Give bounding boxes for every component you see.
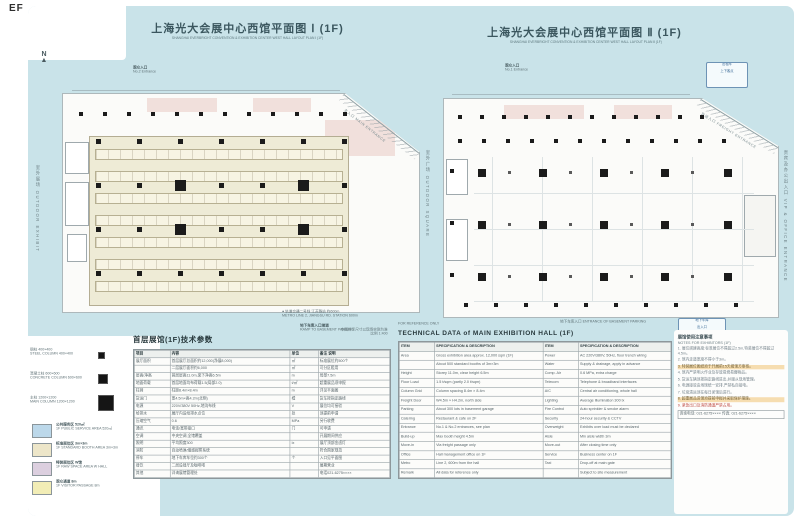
- table-cell: Average illumination 300 lx: [578, 396, 670, 405]
- right-table-title: TECHNICAL DATA of MAIN EXHIBITION HALL (…: [398, 330, 574, 337]
- left-table-note: 本图所示尺寸以现场实测为准比例 1:400: [288, 328, 388, 342]
- table-row: Move-inVia freight passage onlyMove-outA…: [399, 442, 670, 451]
- big-column-marker: [175, 180, 186, 191]
- booth-strip: [95, 237, 343, 248]
- column-marker: [223, 112, 227, 116]
- table-cell: Auto sprinkler & smoke alarm: [578, 405, 670, 414]
- table-cell: No.1 & No.2 entrances, see plan: [435, 423, 544, 432]
- table-cell: 局部7.5m: [318, 373, 390, 380]
- table-cell: 超重展品须申报: [318, 380, 390, 387]
- column-marker: [450, 169, 454, 173]
- table-cell: MPa: [290, 418, 318, 425]
- table-header-cell: 备注 说明: [318, 350, 390, 357]
- table-cell: Business center on 1F: [578, 451, 670, 460]
- table-row: CateringRestaurant & cafe on 2FSecurity2…: [399, 414, 670, 423]
- column-marker: [137, 139, 142, 144]
- table-cell: Restaurant & cafe on 2F: [435, 414, 544, 423]
- table-cell: 首层地面均布荷载1.5(局部2.0): [170, 380, 290, 387]
- table-cell: 符合国家规范: [318, 448, 390, 455]
- lobby-zone: [614, 105, 672, 119]
- note-item: 8. 超重展品进馆须提前申报并采取保护措施。: [678, 397, 785, 402]
- table-cell: Metro: [399, 460, 434, 469]
- booth-strip: [95, 259, 343, 270]
- booth-strip: [95, 149, 343, 160]
- table-cell: [399, 360, 434, 369]
- table-cell: ㎡: [290, 365, 318, 372]
- column-marker: [626, 139, 630, 143]
- table-cell: 照明: [134, 440, 170, 447]
- big-column-marker: [724, 169, 732, 177]
- table-cell: Area: [399, 351, 434, 360]
- table-row: 空调中央空调,全馆覆盖开展期间供应: [134, 433, 389, 440]
- notes-heading-en: NOTES FOR EXHIBITORS (1F): [678, 341, 785, 345]
- column-marker: [656, 115, 660, 119]
- east-core: [744, 195, 776, 257]
- column-marker: [199, 112, 203, 116]
- right-table-note: FOR REFERENCE ONLY: [398, 322, 498, 329]
- table-cell: Fire Control: [543, 405, 578, 414]
- column-symbol: [98, 395, 114, 411]
- table-cell: 首层层高11.0m,梁下净高6.5m: [170, 373, 290, 380]
- note-item: 3. 特装展位图纸须于开展前15天报馆方审核。: [678, 365, 785, 370]
- column-marker: [506, 139, 510, 143]
- table-row: 货运门宽4.5m×高4.2m(北侧)樘货车按指定路线: [134, 395, 389, 402]
- symbol-legend-text: 主柱 1200×1200MAIN COLUMN 1200×1200: [30, 396, 67, 404]
- table-cell: 地面荷载: [134, 380, 170, 387]
- outdoor-square-label: 室外广场 OUTDOOR SQUARE: [424, 150, 430, 237]
- table-cell: 展厅顶部金卤灯: [318, 440, 390, 447]
- table-cell: Subject to site measurement: [578, 469, 670, 478]
- legend-color-swatch: [32, 462, 52, 476]
- column-marker: [175, 112, 179, 116]
- column-marker: [674, 303, 678, 307]
- taxi-sign-badge: 出租车上下客点: [706, 62, 748, 88]
- table-cell: 层高/净高: [134, 373, 170, 380]
- survey-mark: [691, 275, 694, 278]
- column-marker: [524, 115, 528, 119]
- table-cell: Remark: [399, 469, 434, 478]
- table-cell: t/㎡: [290, 380, 318, 387]
- table-cell: 二层设餐厅及咖啡吧: [170, 463, 290, 470]
- column-marker: [178, 271, 183, 276]
- table-cell: 首层展厅总面积约12,000(净展8,000): [170, 358, 290, 365]
- column-marker: [219, 139, 224, 144]
- table-row: HeightStorey 11.0m, clear height 6.5mCom…: [399, 369, 670, 378]
- table-cell: 处: [290, 410, 318, 417]
- outdoor-exhibit-label: 室外展场 OUTDOOR EXHIBIT: [34, 165, 40, 252]
- column-marker: [494, 303, 498, 307]
- column-marker: [480, 115, 484, 119]
- note-item: 5. 货运车辆须按指定路线进出,并服从现场管理。: [678, 378, 785, 383]
- table-cell: 0.6: [170, 418, 290, 425]
- table-cell: 可申请: [318, 425, 390, 432]
- table-cell: Entrance: [399, 423, 434, 432]
- column-marker: [698, 139, 702, 143]
- table-row: 通讯电话/宽带接口门可申请: [134, 425, 389, 432]
- table-cell: Power: [543, 351, 578, 360]
- table-cell: 樘: [290, 395, 318, 402]
- table-cell: 展厅内设给排水点位: [170, 410, 290, 417]
- column-marker: [260, 183, 265, 188]
- table-cell: 220V/380V 50Hz,地沟布线: [170, 403, 290, 410]
- table-row: RemarkAll data for reference onlySubject…: [399, 469, 670, 478]
- column-marker: [644, 303, 648, 307]
- symbol-legend-label: 钢柱 400×400STEEL COLUMN 400×400: [30, 348, 92, 362]
- table-row: MetroLine 2, 600m from the hallTaxiDrop-…: [399, 460, 670, 469]
- vip-entrance-label: 贵宾及办公出入口 VIP & OFFICE ENTRANCE: [782, 150, 788, 282]
- booth-strip: [95, 281, 343, 292]
- table-cell: Column Grid: [399, 387, 434, 396]
- table-cell: Central air conditioning, whole hall: [578, 387, 670, 396]
- annex-stair: [67, 234, 87, 262]
- table-row: 地面荷载首层地面均布荷载1.5(局部2.0)t/㎡超重展品须申报: [134, 380, 389, 387]
- table-cell: 停车: [134, 455, 170, 462]
- dimension-line: [72, 90, 340, 91]
- table-cell: Hall management office on 1F: [435, 451, 544, 460]
- legend-label-text: 标准展位区 3m×3m1F STANDARD BOOTH AREA 3m×3m: [56, 442, 116, 450]
- column-marker: [342, 271, 347, 276]
- table-cell: Security: [543, 414, 578, 423]
- table-header-cell: 单位: [290, 350, 318, 357]
- table-cell: 地下车库车位约300个: [170, 455, 290, 462]
- table-cell: Overweight: [543, 423, 578, 432]
- table-cell: Service: [543, 451, 578, 460]
- table-cell: 展厅面积: [134, 358, 170, 365]
- note-item: 1. 展位搭建高度:标准展位不得超过2.5m,特装展位不得超过4.5m。: [678, 347, 785, 356]
- table-cell: Column spacing 8.4m × 8.4m: [435, 387, 544, 396]
- survey-mark: [508, 171, 511, 174]
- page-corner-code: EF: [9, 3, 24, 14]
- column-marker: [319, 112, 323, 116]
- left-sheet-subtitle: SHANGHAI EVERBRIGHT CONVENTION & EXHIBIT…: [172, 36, 323, 40]
- table-cell: 其他: [134, 470, 170, 478]
- table-cell: 门: [290, 425, 318, 432]
- table-header-row: 项目内容单位备注 说明: [134, 350, 389, 357]
- column-marker: [602, 139, 606, 143]
- table-cell: Exhibits over load must be declared: [578, 423, 670, 432]
- left-sheet-title: 上海光大会展中心西馆平面图 Ⅰ (1F): [140, 20, 355, 36]
- table-row: 层高/净高首层层高11.0m,梁下净高6.5mm局部7.5m: [134, 373, 389, 380]
- symbol-legend-text: 钢柱 400×400STEEL COLUMN 400×400: [30, 348, 67, 356]
- table-row: About 500 standard booths of 3m×3mWaterS…: [399, 360, 670, 369]
- column-symbol-legend: 钢柱 400×400STEEL COLUMN 400×400混凝土柱 600×6…: [30, 344, 140, 422]
- big-column-marker: [478, 169, 486, 177]
- column-marker: [614, 303, 618, 307]
- big-column-marker: [298, 180, 309, 191]
- right-sheet-title: 上海光大会展中心西馆平面图 Ⅱ (1F): [472, 24, 697, 40]
- table-cell: Taxi: [543, 460, 578, 469]
- table-cell: Max booth height 4.5m: [435, 433, 544, 442]
- table-row: EntranceNo.1 & No.2 entrances, see planO…: [399, 423, 670, 432]
- table-header-cell: 项目: [134, 350, 170, 357]
- floorplan-right: 货运入口 FREIGHT ENTRANCE: [443, 98, 779, 318]
- column-marker: [524, 303, 528, 307]
- column-marker: [103, 112, 107, 116]
- column-marker: [450, 221, 454, 225]
- table-cell: 电话021-6275××××: [318, 470, 390, 478]
- table-cell: [290, 433, 318, 440]
- right-data-table: ITEMSPECIFICATION & DESCRIPTIONITEMSPECI…: [398, 341, 672, 479]
- table-cell: Freight Door: [399, 396, 434, 405]
- annex-room: [65, 142, 89, 174]
- column-marker: [700, 115, 704, 119]
- table-row: Build-upMax booth height 4.5mAisleMin ai…: [399, 433, 670, 442]
- survey-mark: [630, 171, 633, 174]
- column-marker: [260, 271, 265, 276]
- column-marker: [612, 115, 616, 119]
- table-cell: 0.6 MPa, extra charge: [578, 369, 670, 378]
- aisle-line: [474, 301, 754, 302]
- big-column-marker: [724, 273, 732, 281]
- big-column-marker: [600, 273, 608, 281]
- table-cell: 入口见平面图: [318, 455, 390, 462]
- table-row: 柱网柱距8.4m×8.4mm详见平面图: [134, 388, 389, 395]
- table-cell: 通讯: [134, 425, 170, 432]
- column-marker: [342, 183, 347, 188]
- table-cell: A/C: [543, 387, 578, 396]
- column-marker: [650, 139, 654, 143]
- table-row: Freight DoorW4.5m × H4.2m, north sideLig…: [399, 396, 670, 405]
- big-column-marker: [478, 221, 486, 229]
- table-cell: 给排水: [134, 410, 170, 417]
- table-cell: 中央空调,全馆覆盖: [170, 433, 290, 440]
- table-cell: 个: [290, 455, 318, 462]
- big-column-marker: [661, 169, 669, 177]
- legend-label-text: 公共服务区 520㎡1F PUBLIC SERVICE AREA 520㎡: [56, 423, 116, 431]
- column-symbol: [98, 352, 105, 359]
- table-row: 给排水展厅内设给排水点位处须提前申请: [134, 410, 389, 417]
- aisle-line: [474, 265, 754, 266]
- table-cell: Min aisle width 3m: [578, 433, 670, 442]
- big-column-marker: [600, 221, 608, 229]
- table-row: 停车地下车库车位约300个个入口见平面图: [134, 455, 389, 462]
- north-arrow-icon: N▲: [38, 52, 50, 64]
- table-cell: [134, 365, 170, 372]
- table-cell: ㎡: [290, 358, 318, 365]
- table-cell: 电话/宽带接口: [170, 425, 290, 432]
- column-marker: [450, 273, 454, 277]
- table-cell: AC 220V/380V, 50Hz, floor trench wiring: [578, 351, 670, 360]
- survey-mark: [691, 171, 694, 174]
- table-cell: Parking: [399, 405, 434, 414]
- scanned-floorplan-page: EF 上海光大会展中心西馆平面图 Ⅰ (1F) SHANGHAI EVERBRI…: [0, 0, 800, 530]
- table-cell: 货车按指定路线: [318, 395, 390, 402]
- symbol-legend-label: 混凝土柱 600×600CONCRETE COLUMN 600×600: [30, 372, 92, 386]
- table-row: Column GridColumn spacing 8.4m × 8.4mA/C…: [399, 387, 670, 396]
- column-marker: [79, 112, 83, 116]
- column-marker: [568, 115, 572, 119]
- column-marker: [137, 183, 142, 188]
- column-marker: [722, 139, 726, 143]
- table-cell: Line 2, 600m from the hall: [435, 460, 544, 469]
- table-row: 餐饮二层设餐厅及咖啡吧展期营业: [134, 463, 389, 470]
- left-entrance-label: 观众入口No.2 Entrance: [133, 66, 253, 80]
- legend-label-text: 特装展位区 W馆1F RAW SPACE AREA W HALL: [56, 461, 116, 469]
- table-cell: 柱网: [134, 388, 170, 395]
- table-cell: 自动喷淋/烟感报警系统: [170, 448, 290, 455]
- annex-room: [65, 182, 89, 226]
- notes-panel: 展馆使用注意事项 NOTES FOR EXHIBITORS (1F) 1. 展位…: [674, 330, 788, 514]
- note-item: 6. 电源接驳由场馆统一安排,严禁私自接电。: [678, 384, 785, 389]
- column-marker: [343, 112, 347, 116]
- table-cell: W4.5m × H4.2m, north side: [435, 396, 544, 405]
- table-cell: Comp. Air: [543, 369, 578, 378]
- table-cell: 须提前申请: [318, 410, 390, 417]
- big-column-marker: [600, 169, 608, 177]
- survey-mark: [630, 275, 633, 278]
- table-row: 二层展厅面积约6,000㎡可分区租用: [134, 365, 389, 372]
- table-header-row: ITEMSPECIFICATION & DESCRIPTIONITEMSPECI…: [399, 342, 670, 351]
- table-cell: 压缩空气: [134, 418, 170, 425]
- legend-color-swatch: [32, 424, 52, 438]
- table-cell: Gross exhibition area approx. 12,000 sqm…: [435, 351, 544, 360]
- table-row: ParkingAbout 300 lots in basement garage…: [399, 405, 670, 414]
- column-marker: [678, 115, 682, 119]
- table-row: 压缩空气0.6MPa另行收费: [134, 418, 389, 425]
- table-cell: [290, 470, 318, 478]
- column-marker: [502, 115, 506, 119]
- big-column-marker: [661, 221, 669, 229]
- column-marker: [96, 227, 101, 232]
- legend-color-swatch: [32, 443, 52, 457]
- table-cell: 空调: [134, 433, 170, 440]
- table-cell: Storey 11.0m, clear height 6.5m: [435, 369, 544, 378]
- column-marker: [96, 271, 101, 276]
- table-header-cell: 内容: [170, 350, 290, 357]
- column-marker: [301, 271, 306, 276]
- note-item: 4. 馆内严禁明火作业及存放易燃易爆物品。: [678, 371, 785, 376]
- table-cell: About 500 standard booths of 3m×3m: [435, 360, 544, 369]
- column-marker: [260, 227, 265, 232]
- big-column-marker: [175, 224, 186, 235]
- table-row: 照明平均照度300lx展厅顶部金卤灯: [134, 440, 389, 447]
- left-data-table: 项目内容单位备注 说明展厅面积首层展厅总面积约12,000(净展8,000)㎡标…: [133, 349, 391, 479]
- badge-text-line: 出租车: [716, 63, 738, 67]
- table-row: 消防自动喷淋/烟感报警系统符合国家规范: [134, 448, 389, 455]
- table-row: 其他详询展馆管理处电话021-6275××××: [134, 470, 389, 478]
- table-row: Floor Load1.5 t/sqm (partly 2.0 t/sqm)Te…: [399, 378, 670, 387]
- table-cell: Height: [399, 369, 434, 378]
- column-marker: [734, 303, 738, 307]
- table-cell: 消防: [134, 448, 170, 455]
- table-cell: Drop-off at main gate: [578, 460, 670, 469]
- table-cell: 另行收费: [318, 418, 390, 425]
- aisle-line: [474, 229, 754, 230]
- column-marker: [634, 115, 638, 119]
- table-cell: 电源: [134, 403, 170, 410]
- column-marker: [127, 112, 131, 116]
- table-cell: Via freight passage only: [435, 442, 544, 451]
- note-item: 2. 馆内走道宽度不得小于3m。: [678, 358, 785, 363]
- table-cell: m: [290, 388, 318, 395]
- table-cell: lx: [290, 440, 318, 447]
- note-item: 7. 垃圾清运须在每日闭馆后进行。: [678, 391, 785, 396]
- big-column-marker: [661, 273, 669, 281]
- table-cell: m: [290, 373, 318, 380]
- table-cell: Move-out: [543, 442, 578, 451]
- lobby-zone: [253, 98, 311, 112]
- legend-label-text: 观众通道 8m1F VISITOR PASSAGE 8m: [56, 480, 116, 488]
- table-cell: Move-in: [399, 442, 434, 451]
- table-cell: Aisle: [543, 433, 578, 442]
- booth-strip: [95, 193, 343, 204]
- table-header-cell: ITEM: [399, 342, 434, 351]
- table-cell: About 300 lots in basement garage: [435, 405, 544, 414]
- legend-color-swatch: [32, 481, 52, 495]
- big-column-marker: [539, 169, 547, 177]
- table-cell: 展位均可接驳: [318, 403, 390, 410]
- survey-mark: [569, 275, 572, 278]
- column-marker: [554, 303, 558, 307]
- table-cell: Office: [399, 451, 434, 460]
- table-cell: Water: [543, 360, 578, 369]
- column-marker: [674, 139, 678, 143]
- column-marker: [178, 139, 183, 144]
- big-column-marker: [539, 221, 547, 229]
- column-marker: [219, 271, 224, 276]
- right-entrance-label: 观众入口No.1 Entrance: [505, 64, 625, 78]
- table-cell: [290, 463, 318, 470]
- column-marker: [584, 303, 588, 307]
- column-marker: [96, 139, 101, 144]
- table-cell: Telecom: [543, 378, 578, 387]
- column-marker: [96, 183, 101, 188]
- table-cell: 二层展厅面积约6,000: [170, 365, 290, 372]
- column-marker: [301, 139, 306, 144]
- column-marker: [554, 139, 558, 143]
- column-marker: [151, 112, 155, 116]
- table-cell: Telephone & broadband interfaces: [578, 378, 670, 387]
- table-cell: Catering: [399, 414, 434, 423]
- table-cell: Lighting: [543, 396, 578, 405]
- table-cell: [543, 469, 578, 478]
- symbol-legend-text: 混凝土柱 600×600CONCRETE COLUMN 600×600: [30, 372, 67, 380]
- column-marker: [530, 139, 534, 143]
- legend-label: 观众通道 8m1F VISITOR PASSAGE 8m: [56, 480, 156, 494]
- big-column-marker: [298, 224, 309, 235]
- survey-mark: [630, 223, 633, 226]
- column-marker: [704, 303, 708, 307]
- table-row: 电源220V/380V 50Hz,地沟布线V展位均可接驳: [134, 403, 389, 410]
- column-marker: [342, 139, 347, 144]
- column-marker: [137, 271, 142, 276]
- annex-room: [446, 159, 468, 195]
- table-cell: Floor Load: [399, 378, 434, 387]
- survey-mark: [508, 223, 511, 226]
- column-marker: [247, 112, 251, 116]
- table-cell: 标准展位约500个: [318, 358, 390, 365]
- table-cell: V: [290, 403, 318, 410]
- annex-room: [446, 219, 468, 261]
- column-marker: [219, 183, 224, 188]
- note-item: 咨询电话: 021-6275×××× 传真: 021-6275××××: [678, 410, 785, 418]
- table-row: 展厅面积首层展厅总面积约12,000(净展8,000)㎡标准展位约500个: [134, 358, 389, 365]
- column-marker: [342, 227, 347, 232]
- table-cell: 详询展馆管理处: [170, 470, 290, 478]
- parking-entrance-note: 地下车库入口 ENTRANCE OF BASEMENT PARKING: [560, 320, 700, 327]
- lobby-zone: [504, 105, 584, 119]
- column-marker: [482, 139, 486, 143]
- table-cell: 展期营业: [318, 463, 390, 470]
- table-cell: [290, 448, 318, 455]
- floorplan-left: 主入口 MAIN ENTRANCE: [62, 93, 420, 313]
- table-cell: 宽4.5m×高4.2m(北侧): [170, 395, 290, 402]
- survey-mark: [691, 223, 694, 226]
- note-item: 9. 紧急出口及消防通道严禁占用。: [678, 404, 785, 409]
- dimension-line: [452, 94, 690, 95]
- big-column-marker: [478, 273, 486, 281]
- table-cell: 1.5 t/sqm (partly 2.0 t/sqm): [435, 378, 544, 387]
